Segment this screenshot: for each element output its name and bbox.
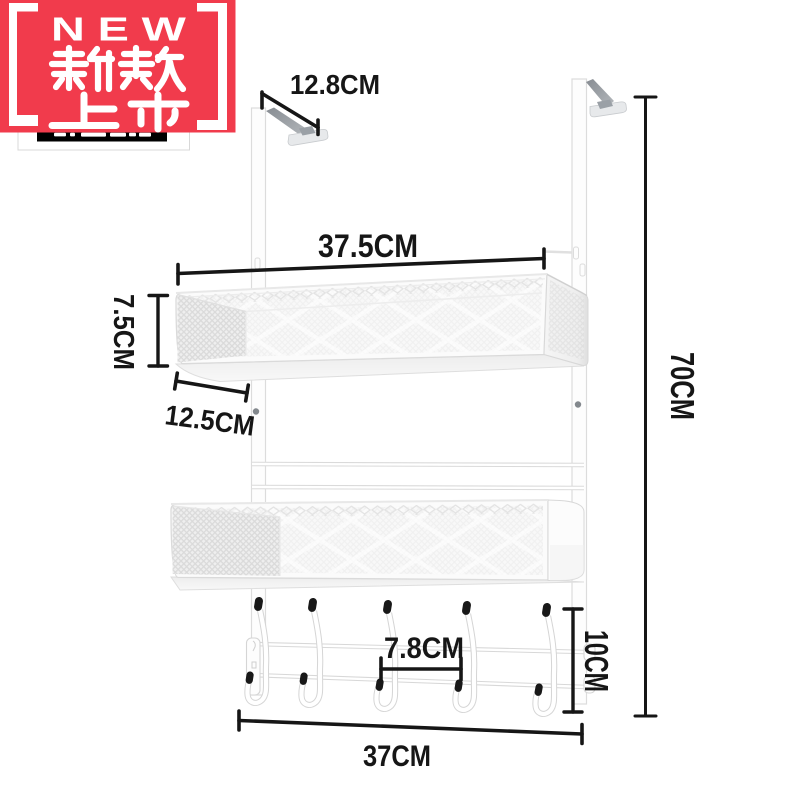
svg-text:12.8CM: 12.8CM (290, 69, 380, 100)
svg-text:7.8CM: 7.8CM (384, 632, 464, 665)
svg-text:10CM: 10CM (578, 630, 615, 692)
svg-text:7.5CM: 7.5CM (107, 294, 139, 370)
svg-text:NEW: NEW (51, 10, 187, 47)
svg-text:37.5CM: 37.5CM (318, 228, 418, 264)
svg-text:70CM: 70CM (663, 352, 700, 420)
svg-text:37CM: 37CM (363, 740, 431, 773)
